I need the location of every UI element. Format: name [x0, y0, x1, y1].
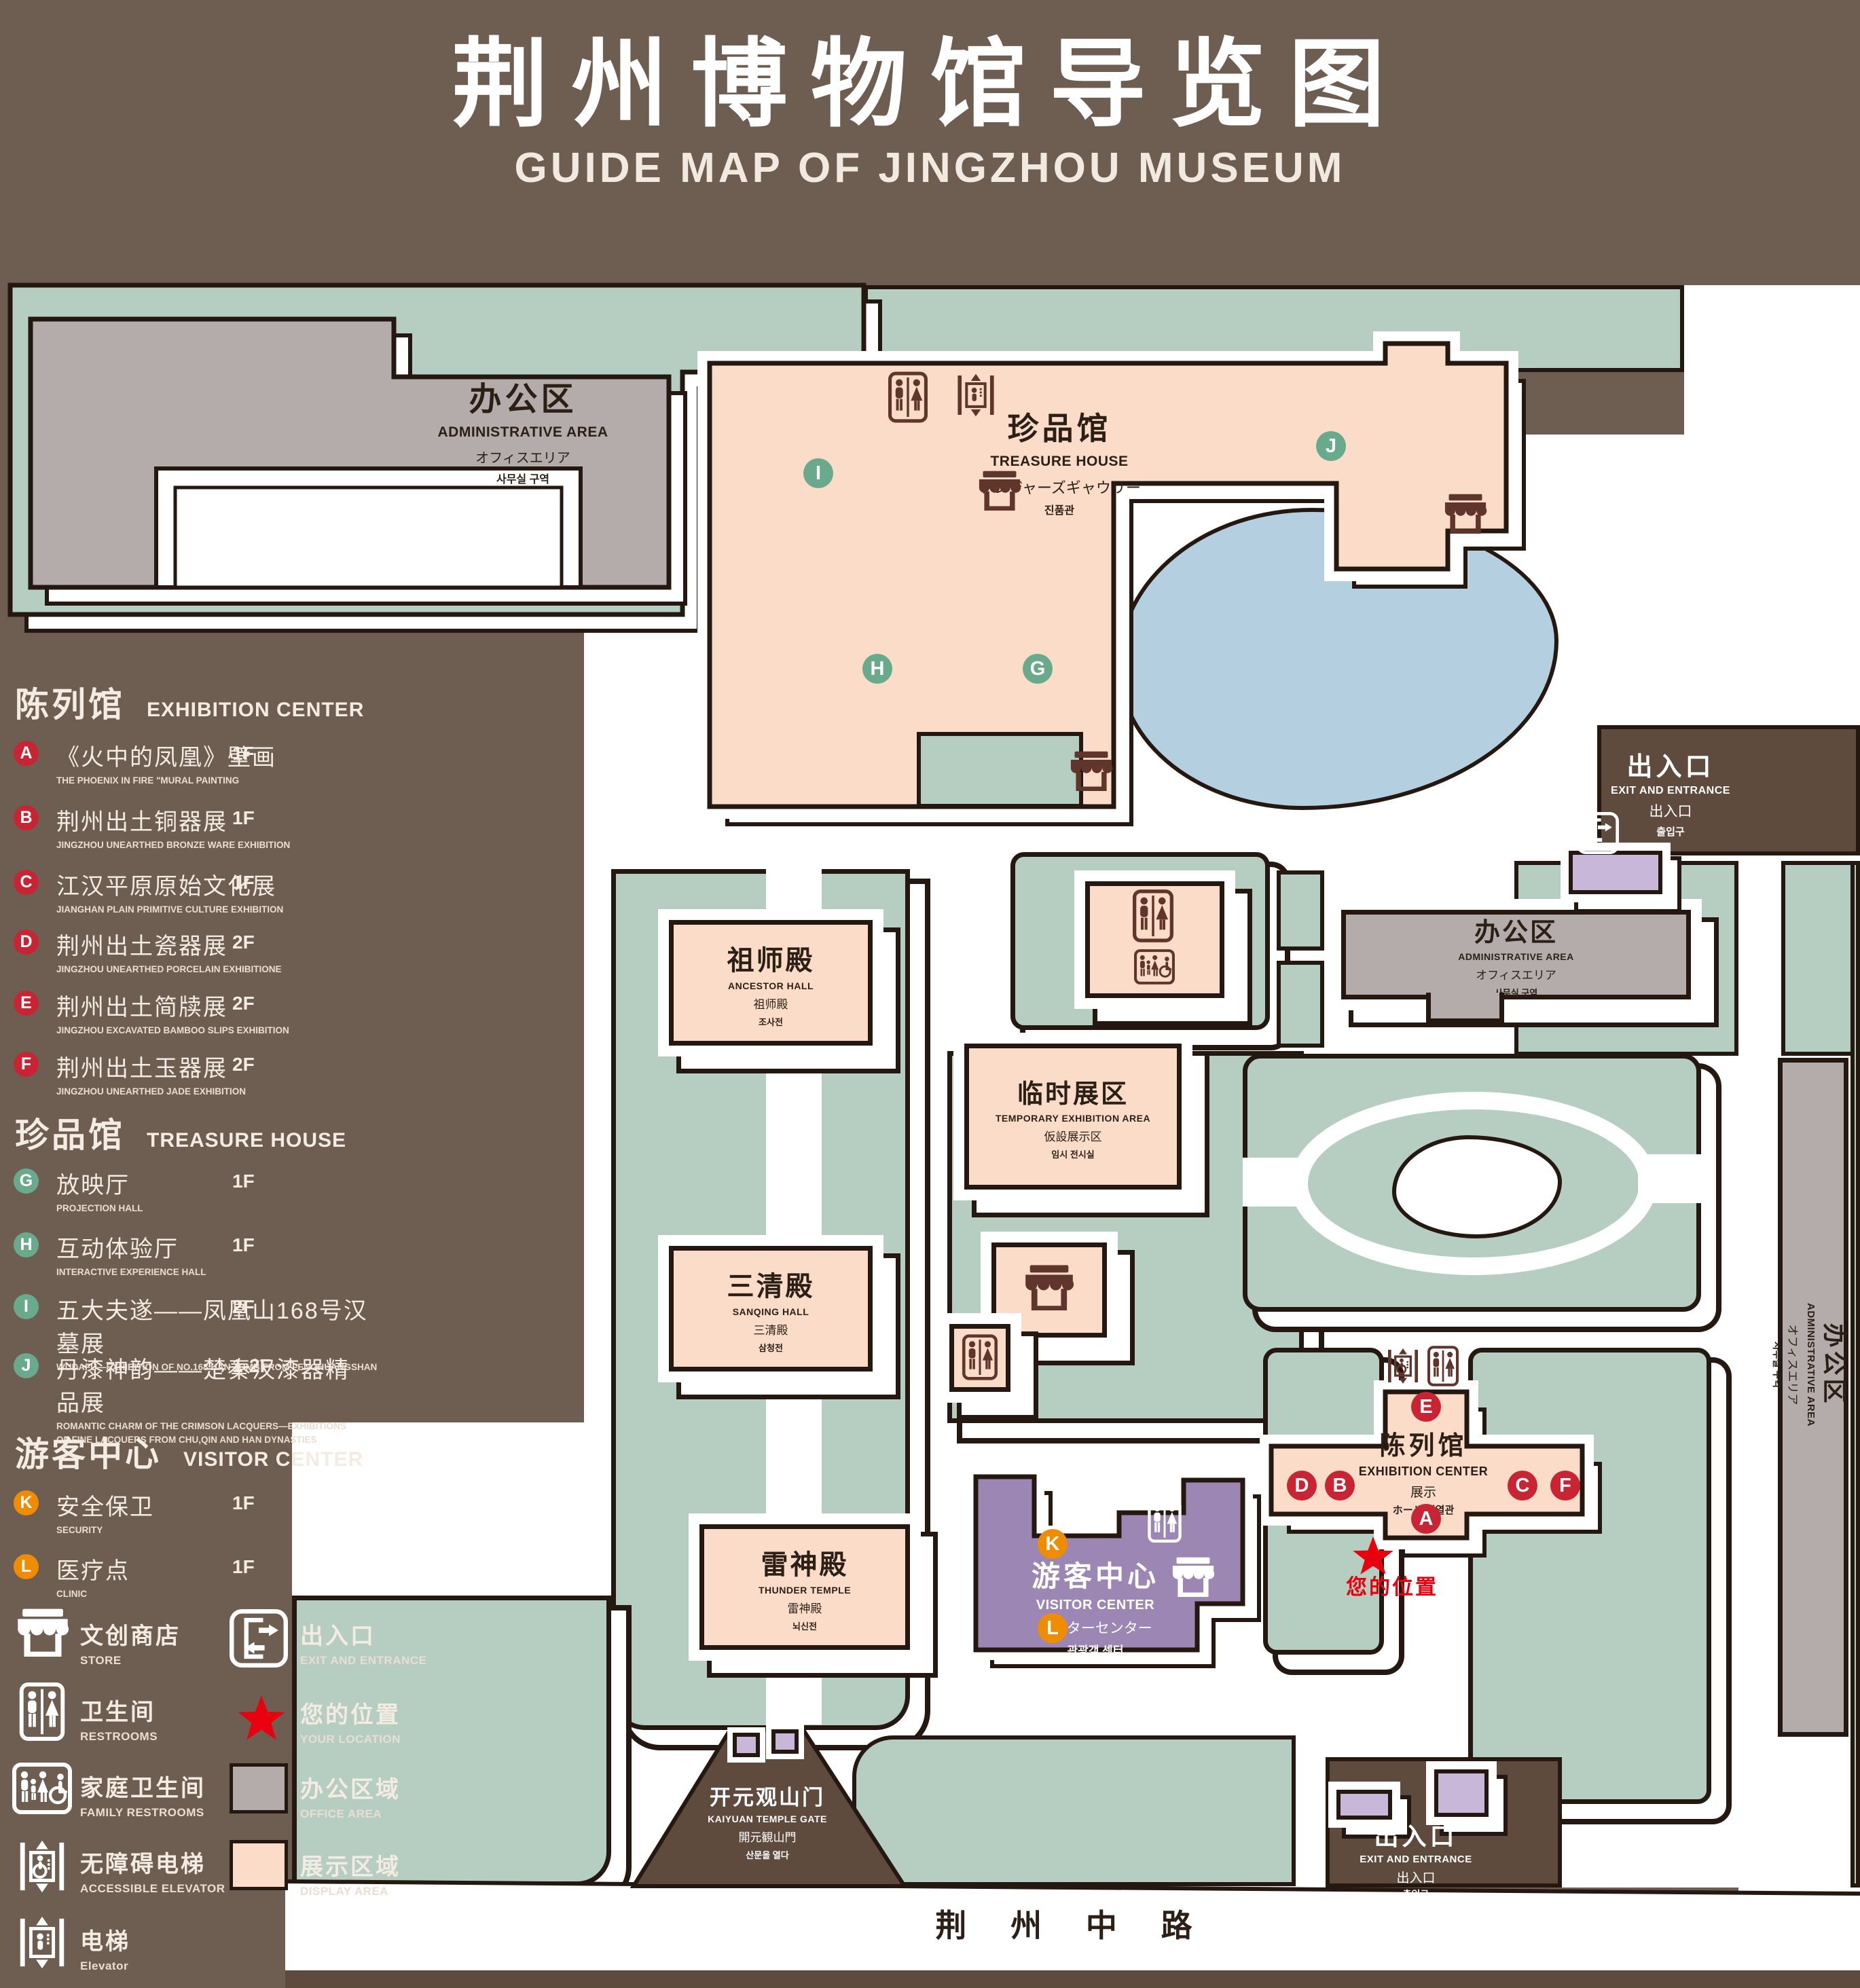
- ancestor-hall-label: 祖师殿 ANCESTOR HALL 祖师殿 조사전: [727, 938, 815, 1028]
- map-marker-f: F: [1550, 1471, 1580, 1501]
- store-icon: [1024, 1264, 1074, 1310]
- map-marker-b: B: [1325, 1471, 1355, 1501]
- thunder-temple-building: 雷神殿 THUNDER TEMPLE 雷神殿 뇌신전: [699, 1524, 910, 1650]
- road-name-label: 荆 州 中 路: [285, 1901, 1860, 1946]
- restrooms-icon: [888, 370, 928, 424]
- legend-store: 文创商店STORE: [80, 1617, 181, 1668]
- store-icon: [1171, 1556, 1215, 1597]
- elevator-icon: [14, 1915, 71, 1970]
- exit-purple-building: [1336, 1790, 1392, 1820]
- map-marker-e: E: [1411, 1392, 1441, 1422]
- admin-strip-label: 办公区 ADMINISTRATIVE AREA オフィスエリア 사무실 구역: [1772, 1219, 1854, 1511]
- legend-office-area: 办公区域OFFICE AREA: [300, 1771, 401, 1821]
- legend-exit: 出入口EXIT AND ENTRANCE: [300, 1617, 426, 1668]
- restrooms-icon: [1133, 889, 1173, 942]
- map-marker-c: C: [1508, 1471, 1537, 1501]
- store-icon: [1070, 750, 1113, 791]
- display-area-swatch: [230, 1840, 288, 1890]
- exit-bottom-label: 出入口 EXIT AND ENTRANCE 出入口 출입구: [1348, 1817, 1484, 1901]
- map-marker-j: J: [1316, 431, 1346, 461]
- small-purple-building: [1569, 851, 1662, 894]
- legend-display-area: 展示区域DISPLAY AREA: [300, 1848, 401, 1898]
- garden-path-stub-right: [1638, 1154, 1701, 1203]
- store-icon: [1444, 493, 1487, 534]
- office-area-swatch: [230, 1763, 288, 1814]
- legend-item-h: H 互动体验厅INTERACTIVE EXPERIENCE HALL 1F: [14, 1230, 367, 1277]
- elevator-icon: [956, 368, 996, 422]
- legend-your-location: 您的位置YOUR LOCATION: [300, 1696, 401, 1746]
- legend-item-g: G 放映厅PROJECTION HALL 1F: [14, 1166, 367, 1213]
- page-subtitle: GUIDE MAP OF JINGZHOU MUSEUM: [0, 144, 1860, 192]
- gate-purple-building: [733, 1733, 760, 1757]
- family-restrooms-icon: [1134, 949, 1175, 984]
- family-restrooms-icon: [12, 1762, 72, 1815]
- exit-purple-building: [1434, 1769, 1489, 1817]
- map-path-topright: [1684, 285, 1860, 730]
- road-bottom-strip: [285, 1970, 1860, 1988]
- map-marker-g: G: [1023, 654, 1053, 684]
- store-icon: [978, 470, 1021, 511]
- exit-icon: [1577, 812, 1619, 854]
- restrooms-icon: [14, 1682, 71, 1741]
- restrooms-icon: [1427, 1346, 1459, 1386]
- accessible-elevator-icon: [14, 1839, 71, 1894]
- temporary-exhibition-label: 临时展区 TEMPORARY EXHIBITION AREA 仮設展示区 임시 …: [996, 1073, 1150, 1160]
- legend-elevator: 电梯Elevator: [80, 1923, 130, 1973]
- ancestor-hall-building: 祖师殿 ANCESTOR HALL 祖师殿 조사전: [669, 920, 873, 1046]
- map-marker-i: I: [803, 458, 833, 488]
- location-star-icon: [236, 1695, 287, 1742]
- legend-accessible-elevator: 无障碍电梯ACCESSIBLE ELEVATOR: [80, 1845, 225, 1896]
- legend-item-k: K 安全保卫SECURITY 1F: [14, 1488, 367, 1535]
- garden-path-stub-left: [1243, 1158, 1307, 1207]
- legend-restrooms: 卫生间RESTROOMS: [80, 1693, 158, 1744]
- map-marker-h: H: [862, 654, 892, 684]
- treasure-house-building: [679, 319, 1609, 862]
- page-title: 荆州博物馆导览图: [0, 5, 1860, 145]
- gate-purple-building: [771, 1729, 799, 1754]
- sanqing-hall-label: 三清殿 SANQING HALL 三清殿 삼청전: [727, 1264, 815, 1354]
- legend-section-treasure-house: 珍品馆TREASURE HOUSE: [15, 1108, 346, 1157]
- admin-right-label: 办公区 ADMINISTRATIVE AREA オフィスエリア 사무실 구역: [1458, 911, 1574, 999]
- green-admin-left-1: [1277, 870, 1324, 951]
- map-marker-a: A: [1411, 1504, 1441, 1534]
- legend-section-exhibition-center: 陈列馆EXHIBITION CENTER: [15, 678, 364, 726]
- green-northeast-edge: [1781, 861, 1860, 1056]
- map-marker-k: K: [1038, 1529, 1068, 1559]
- legend-item-c: C 江汉平原原始文化展JIANGHAN PLAIN PRIMITIVE CULT…: [14, 868, 367, 915]
- kaiyuan-gate-label: 开元观山门 KAIYUAN TEMPLE GATE 開元観山門 산문을 열다: [699, 1780, 835, 1861]
- map-marker-d: D: [1287, 1471, 1317, 1501]
- legend-item-d: D 荆州出土瓷器展JINGZHOU UNEARTHED PORCELAIN EX…: [14, 927, 367, 974]
- visitor-center-label: 游客中心 VISITOR CENTER ビジターセンター 관광객 센터: [993, 1553, 1197, 1658]
- legend-item-a: A 《火中的凤凰》壁画THE PHOENIX IN FIRE "MURAL PA…: [14, 739, 367, 786]
- accessible-elevator-icon: [1387, 1346, 1419, 1386]
- legend-item-l: L 医疗点CLINIC 1F: [14, 1552, 367, 1599]
- legend-item-f: F 荆州出土玉器展JINGZHOU UNEARTHED JADE EXHIBIT…: [14, 1050, 367, 1097]
- green-admin-left-2: [1277, 961, 1324, 1048]
- exhibition-center-label: 陈列馆 EXHIBITION CENTER 展示 ホール 진열관: [1321, 1424, 1525, 1517]
- temporary-exhibition-building: 临时展区 TEMPORARY EXHIBITION AREA 仮設展示区 임시 …: [964, 1044, 1182, 1190]
- legend-item-b: B 荆州出土铜器展JINGZHOU UNEARTHED BRONZE WARE …: [14, 803, 367, 850]
- restrooms-icon: [1148, 1499, 1182, 1543]
- admin-top-left-label: 办公区 ADMINISTRATIVE AREA オフィスエリア 사무실 구역: [387, 372, 659, 486]
- road-top-outline: [285, 1874, 1860, 1901]
- admin-area-right-building: 办公区 ADMINISTRATIVE AREA オフィスエリア 사무실 구역: [1341, 910, 1691, 999]
- restrooms-icon: [962, 1332, 998, 1382]
- exit-icon: [230, 1609, 288, 1668]
- store-icon: [16, 1608, 69, 1657]
- green-lakeside: [917, 732, 1083, 808]
- map-marker-l: L: [1038, 1613, 1068, 1643]
- sanqing-hall-building: 三清殿 SANQING HALL 三清殿 삼청전: [669, 1246, 873, 1372]
- admin-right-tab: [1426, 993, 1504, 1023]
- your-location-star-icon: [1351, 1536, 1395, 1577]
- legend-section-visitor-center: 游客中心VISITOR CENTER: [15, 1427, 363, 1476]
- legend-family-restrooms: 家庭卫生间FAMILY RESTROOMS: [80, 1769, 206, 1820]
- exit-top-right-label: 出入口 EXIT AND ENTRANCE 出入口 출입구: [1603, 745, 1738, 839]
- legend-item-e: E 荆州出土简牍展JINGZHOU EXCAVATED BAMBOO SLIPS…: [14, 989, 367, 1035]
- thunder-temple-label: 雷神殿 THUNDER TEMPLE 雷神殿 뇌신전: [759, 1543, 851, 1632]
